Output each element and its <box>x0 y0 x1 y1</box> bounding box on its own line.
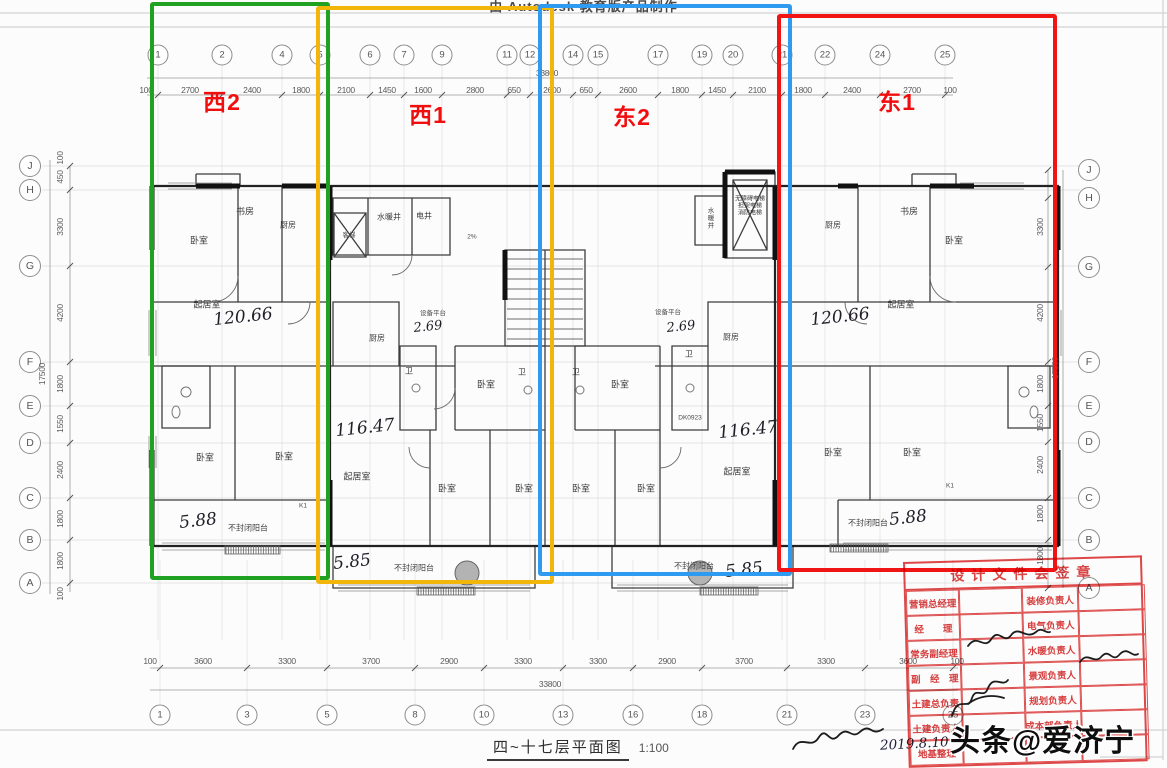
stamp-role-left: 营销总经理 <box>906 589 960 615</box>
stamp-role-right: 规划负责人 <box>1025 686 1082 713</box>
stamp-sign-right <box>1078 584 1146 611</box>
stamp-sign-left <box>959 588 1023 615</box>
stamp-role-right: 装修负责人 <box>1022 586 1079 613</box>
unit-label-east2: 东2 <box>613 98 651 132</box>
stamp-role-left: 常务副经理 <box>907 639 961 665</box>
stamp-sign-left <box>961 663 1025 690</box>
drawing-scale: 1:100 <box>639 741 669 755</box>
stamp-sign-left <box>962 688 1026 715</box>
stamp-sign-left <box>959 613 1023 640</box>
stamp-role-right: 水暖负责人 <box>1023 636 1080 663</box>
stamp-sign-right <box>1078 609 1146 636</box>
stamp-role-right: 电气负责人 <box>1022 611 1079 638</box>
unit-label-east1: 东1 <box>878 83 916 117</box>
stamp-sign-left <box>960 638 1024 665</box>
stamp-sign-right <box>1081 684 1149 711</box>
stamp-role-left: 土建总负责 <box>909 689 963 715</box>
unit-label-west1: 西1 <box>409 96 447 130</box>
stamp-role-left: 副 经 理 <box>908 664 962 690</box>
stamp-role-right: 景观负责人 <box>1024 661 1081 688</box>
watermark: 头条@爱济宁 <box>950 716 1135 760</box>
drawing-title: 四~十七层平面图 <box>487 736 629 761</box>
floorplan-sheet: 1245679111214151719202122242513581013161… <box>0 0 1167 760</box>
stamp-sign-right <box>1079 634 1147 661</box>
stamp-sign-right <box>1080 659 1148 686</box>
stamp-role-left: 经 理 <box>907 614 961 640</box>
drawing-title-block: 四~十七层平面图 1:100 <box>487 736 669 761</box>
unit-label-west2: 西2 <box>203 83 241 117</box>
